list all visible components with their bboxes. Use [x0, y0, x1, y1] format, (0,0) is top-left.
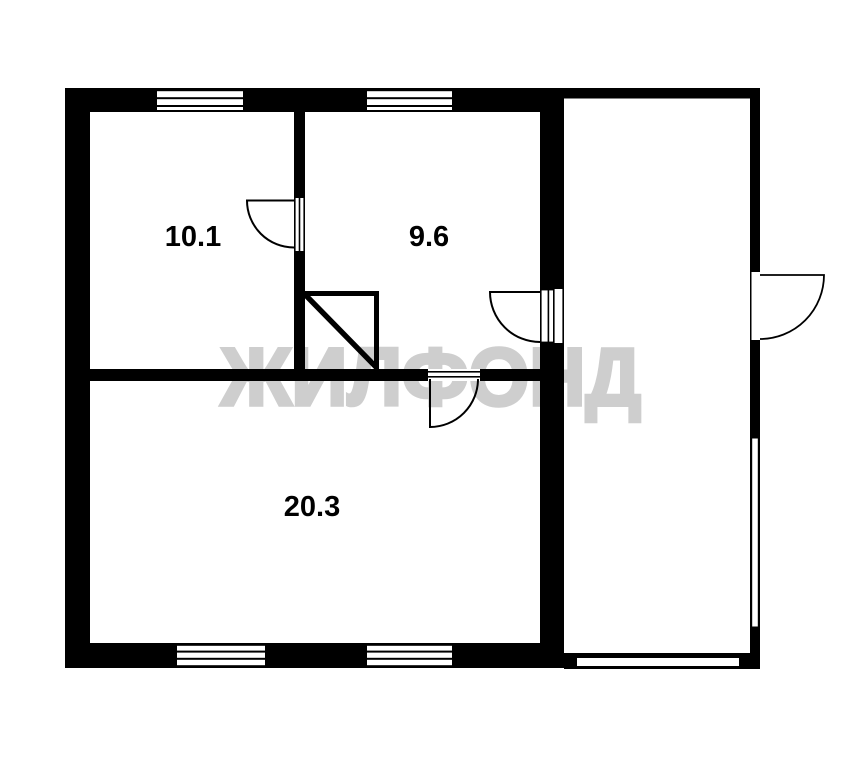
svg-text:9.6: 9.6 [409, 221, 449, 253]
svg-text:20.3: 20.3 [284, 491, 340, 523]
svg-text:10.1: 10.1 [165, 221, 221, 253]
